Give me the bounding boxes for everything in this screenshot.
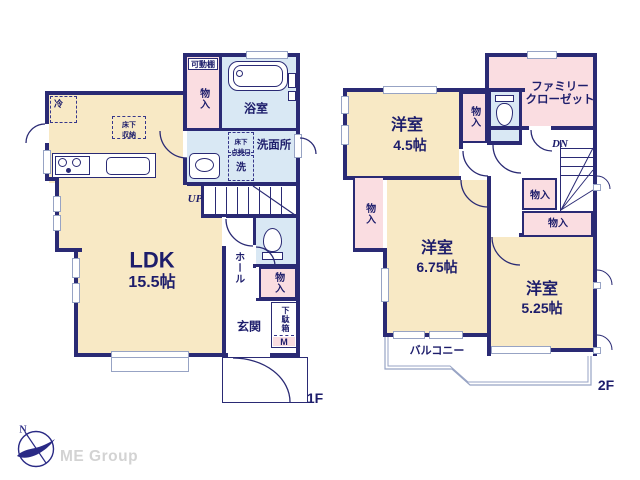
casement-window bbox=[593, 282, 601, 289]
compass-north-label: N bbox=[19, 424, 26, 435]
stairs-step bbox=[561, 166, 593, 167]
window bbox=[381, 268, 389, 302]
meter-cell: M bbox=[273, 337, 295, 346]
door-arc bbox=[300, 138, 316, 154]
wall bbox=[45, 91, 187, 95]
bedroom-5-25-size: 5.25帖 bbox=[521, 301, 562, 317]
door-opening bbox=[459, 149, 463, 176]
bedroom-6-75-name: 洋室 bbox=[421, 240, 453, 258]
door-opening bbox=[183, 131, 187, 158]
stairs-step bbox=[561, 157, 593, 158]
bathroom-label: 浴室 bbox=[244, 102, 268, 115]
compass-bird-icon bbox=[17, 439, 55, 458]
toilet-tank-icon bbox=[262, 252, 283, 260]
shower-panel-icon bbox=[288, 73, 296, 88]
stove-burner-icon bbox=[58, 158, 67, 167]
refrigerator-label: 冷 bbox=[54, 99, 63, 109]
window bbox=[341, 96, 349, 114]
window bbox=[53, 196, 61, 212]
wall bbox=[487, 92, 491, 356]
stairs-step bbox=[226, 187, 227, 214]
bedroom-4-5-name: 洋室 bbox=[391, 117, 423, 135]
closet-b-label: 物入 bbox=[530, 190, 550, 201]
family-closet-line1: ファミリー bbox=[524, 81, 596, 94]
door-arc bbox=[26, 124, 45, 143]
stairs-step bbox=[259, 187, 260, 214]
hall-label: ホール bbox=[232, 252, 243, 285]
family-closet-line2: クローゼット bbox=[524, 94, 596, 107]
underfloor-storage: 床下 収納 bbox=[112, 116, 146, 139]
underfloor-storage-label: 床下 bbox=[113, 120, 145, 130]
stairs-diagonal bbox=[561, 170, 593, 210]
underfloor-hatch-label: 床下 bbox=[229, 136, 253, 146]
window bbox=[341, 125, 349, 145]
door-opening bbox=[461, 176, 487, 180]
door-opening bbox=[491, 233, 519, 237]
terrace-step bbox=[111, 357, 189, 372]
window bbox=[72, 258, 80, 278]
ldk-size-label: 15.5帖 bbox=[128, 274, 175, 292]
washroom-label: 洗面所 bbox=[257, 140, 292, 153]
shoe-box-label: 下駄箱 bbox=[280, 306, 289, 333]
company-logo-text: ME Group bbox=[60, 448, 138, 465]
wall bbox=[201, 214, 300, 218]
door-opening bbox=[253, 245, 256, 264]
ldk-room bbox=[57, 181, 201, 218]
closet-c-label: 物入 bbox=[548, 218, 568, 229]
kitchen-sink-icon bbox=[106, 157, 150, 175]
balcony-label: バルコニー bbox=[410, 345, 465, 357]
window bbox=[491, 346, 551, 354]
stairs-step bbox=[215, 187, 216, 214]
toilet-icon bbox=[263, 228, 282, 252]
laundry-space: 洗 bbox=[228, 155, 254, 181]
compass-icon bbox=[19, 432, 54, 467]
window bbox=[53, 215, 61, 231]
stairs-edge bbox=[560, 140, 561, 212]
stairs-step bbox=[237, 187, 238, 214]
wall bbox=[487, 141, 522, 145]
stairs-step bbox=[248, 187, 249, 214]
stove-burner-icon bbox=[72, 158, 81, 167]
door-opening bbox=[45, 124, 49, 143]
window bbox=[72, 283, 80, 303]
bedroom-4-5-size: 4.5帖 bbox=[393, 138, 426, 154]
closet-a-label: 物入 bbox=[468, 106, 479, 128]
stairs-diagonal bbox=[561, 190, 593, 210]
family-closet-label: ファミリー クローゼット bbox=[524, 81, 596, 107]
floorplan-canvas: 冷 床下 収納 床下 点検口 洗 可動棚 物入 物入 下駄箱 bbox=[0, 0, 640, 480]
door-opening bbox=[529, 126, 551, 130]
floor2-label: 2F bbox=[598, 378, 614, 394]
door-arc bbox=[493, 145, 521, 173]
compass-needle-icon bbox=[25, 432, 46, 463]
window bbox=[383, 86, 437, 94]
door-arc bbox=[226, 219, 253, 246]
casement-window bbox=[593, 184, 601, 191]
underfloor-hatch: 床下 点検口 bbox=[228, 132, 254, 153]
ldk-name-label: LDK bbox=[129, 249, 174, 274]
stairs-dn-label: DN bbox=[552, 138, 568, 150]
stove-burner-icon bbox=[66, 168, 71, 173]
door-arc bbox=[463, 151, 488, 176]
laundry-label: 洗 bbox=[236, 162, 246, 173]
floor1-label: 1F bbox=[307, 391, 323, 407]
window bbox=[246, 51, 288, 59]
underfloor-storage-label: 収納 bbox=[113, 130, 145, 140]
wall bbox=[187, 128, 296, 131]
stairs-step bbox=[561, 175, 593, 176]
casement-window bbox=[593, 347, 601, 354]
window bbox=[527, 51, 557, 59]
refrigerator-space: 冷 bbox=[50, 96, 77, 123]
window bbox=[43, 150, 51, 174]
bedroom-5-25-name: 洋室 bbox=[526, 281, 558, 299]
wall bbox=[183, 53, 187, 185]
wall bbox=[519, 92, 522, 145]
entrance-label: 玄関 bbox=[237, 320, 261, 333]
toilet-tank-icon bbox=[495, 95, 514, 102]
window bbox=[429, 331, 463, 339]
wall bbox=[353, 248, 387, 252]
shoe-box: 下駄箱 M bbox=[271, 302, 297, 348]
door-opening bbox=[222, 217, 226, 246]
washbasin-bowl-icon bbox=[195, 158, 214, 172]
movable-shelf-chip: 可動棚 bbox=[188, 58, 218, 70]
shower-panel-icon bbox=[288, 91, 296, 101]
closet-top-label: 物入 bbox=[197, 88, 208, 110]
closet-d-label: 物入 bbox=[363, 203, 374, 225]
stairs-up-label: UP bbox=[188, 193, 203, 205]
stairs-step bbox=[270, 187, 271, 214]
window bbox=[393, 331, 425, 339]
closet-hall-label: 物入 bbox=[272, 272, 283, 294]
door-arc bbox=[531, 130, 552, 151]
stairs-step bbox=[281, 187, 282, 214]
bedroom-6-75-size: 6.75帖 bbox=[416, 260, 457, 276]
door-opening bbox=[487, 145, 491, 176]
wall bbox=[219, 57, 222, 131]
window bbox=[294, 134, 302, 158]
entrance-porch bbox=[222, 357, 308, 403]
bathtub-drain-icon bbox=[236, 70, 243, 77]
meter-label: M bbox=[280, 336, 288, 346]
